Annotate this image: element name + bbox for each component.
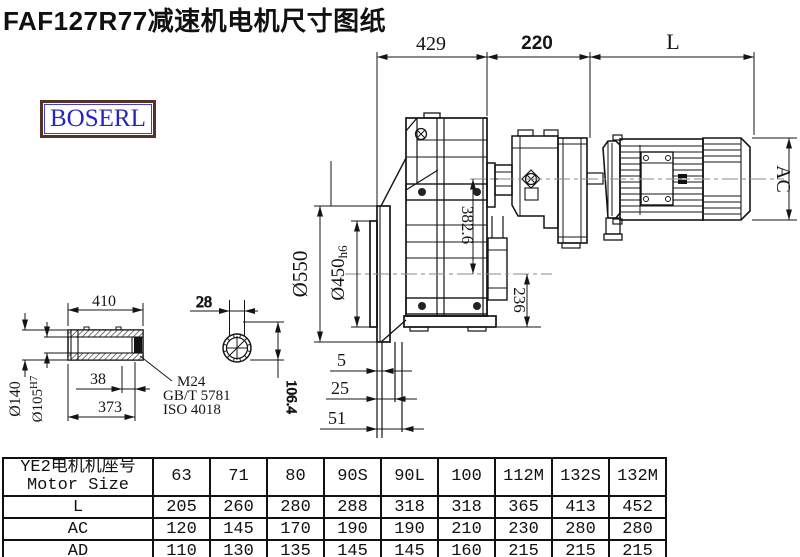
main-dimensions [314,52,797,429]
dim-450-label: Ø450h6 [328,245,350,301]
dim-51-label: 51 [328,408,346,428]
motor-size-table: YE2电机机座号 Motor Size 63 71 80 90S 90L 100… [2,457,667,557]
table-cell: 145 [324,540,381,557]
header-en: Motor Size [4,477,152,495]
dim-106-label: 106.4 [283,380,299,414]
dim-220-label: 220 [521,33,553,54]
table-row-AC: AC 120 145 170 190 190 210 230 280 280 [3,518,666,540]
table-cell: 215 [609,540,666,557]
table-cell: 318 [381,496,438,518]
drawing-page: FAF127R77减速机电机尺寸图纸 BOSERL [0,0,800,557]
dim-450-value: Ø450 [328,258,349,300]
table-cell: 160 [438,540,495,557]
motor [603,135,750,240]
header-cn: YE2电机机座号 [4,459,152,477]
column-header: 132M [609,458,666,496]
table-cell: 280 [609,518,666,540]
flange-neck-lines [377,342,402,438]
dim-L-label: L [666,29,679,54]
table-cell: 210 [438,518,495,540]
dim-236-label: 236 [510,287,529,313]
table-cell: 413 [552,496,609,518]
note-iso-standard: ISO 4018 [163,402,221,418]
dim-5-label: 5 [337,350,346,370]
dim-105-tolerance: H7 [28,375,40,389]
centerlines [345,179,784,274]
dim-105-value: Ø105 [30,389,46,422]
column-header: 80 [267,458,324,496]
dim-140-label: Ø140 [7,381,24,417]
table-cell: 452 [609,496,666,518]
table-cell: 145 [210,518,267,540]
dim-550-label: Ø550 [288,251,312,298]
table-cell: 365 [495,496,552,518]
table-cell: 135 [267,540,324,557]
table-cell: 280 [552,518,609,540]
table-cell: 130 [210,540,267,557]
input-flange-block [558,138,587,243]
table-cell: 170 [267,518,324,540]
table-cell: 190 [324,518,381,540]
table-cell: 288 [324,496,381,518]
table-cell: 120 [153,518,210,540]
table-cell: 318 [438,496,495,518]
column-header: 90S [324,458,381,496]
table-cell: 145 [381,540,438,557]
table-cell: 110 [153,540,210,557]
table-header-row: YE2电机机座号 Motor Size 63 71 80 90S 90L 100… [3,458,666,496]
dim-450-tolerance: h6 [335,245,350,259]
shaft-seal [134,337,142,353]
column-header: 71 [210,458,267,496]
dim-382-label: 382.6 [458,206,477,244]
hollow-shaft-detail [68,327,143,360]
table-cell: 190 [381,518,438,540]
column-header: 112M [495,458,552,496]
dim-429-label: 429 [416,33,446,55]
table-cell: 215 [552,540,609,557]
column-header: 90L [381,458,438,496]
dim-373-label: 373 [98,399,122,416]
column-header: 132S [552,458,609,496]
table-cell: 260 [210,496,267,518]
dim-28-label: 28 [196,294,212,311]
column-header: 100 [438,458,495,496]
table-cell: 230 [495,518,552,540]
dim-410-label: 410 [92,293,116,310]
shaft-end-view [223,334,251,362]
dim-AC-label: AC [772,165,794,193]
table-row-L: L 205 260 280 288 318 318 365 413 452 [3,496,666,518]
table-header-motor-size: YE2电机机座号 Motor Size [3,458,153,496]
gearbox-foot [404,316,496,327]
row-label: AC [3,518,153,540]
dim-105-label: Ø105H7 [28,375,46,422]
table-cell: 280 [267,496,324,518]
table-cell: 205 [153,496,210,518]
dim-38-label: 38 [90,371,106,388]
row-label: AD [3,540,153,557]
column-header: 63 [153,458,210,496]
table-row-AD: AD 110 130 135 145 145 160 215 215 215 [3,540,666,557]
row-label: L [3,496,153,518]
table-cell: 215 [495,540,552,557]
dim-25-label: 25 [331,378,349,398]
note-leader-line [140,356,172,381]
gearbox-body [404,113,496,331]
main-dimension-labels: 429 220 L AC 382.6 236 Ø550 Ø450h6 5 25 … [288,29,794,428]
